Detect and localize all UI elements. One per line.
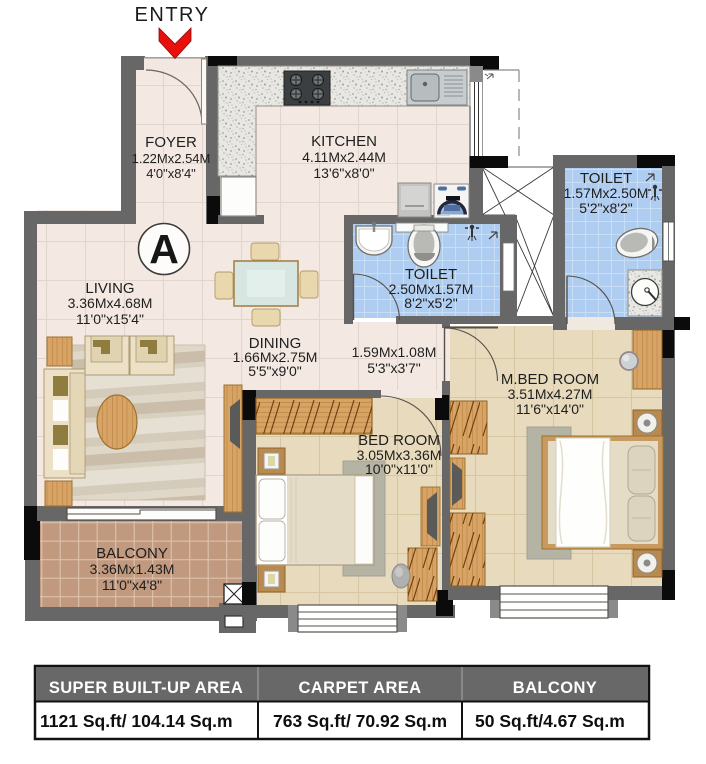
svg-text:1.57Mx2.50M: 1.57Mx2.50M: [564, 185, 649, 201]
svg-text:CARPET AREA: CARPET AREA: [299, 679, 422, 697]
svg-text:763 Sq.ft/ 70.92 Sq.m: 763 Sq.ft/ 70.92 Sq.m: [273, 711, 447, 731]
svg-text:1.22Mx2.54M: 1.22Mx2.54M: [132, 151, 211, 166]
svg-text:BALCONY: BALCONY: [513, 679, 597, 697]
svg-text:11'0"x4'8": 11'0"x4'8": [102, 577, 162, 593]
svg-text:11'0"x15'4": 11'0"x15'4": [76, 311, 144, 327]
svg-text:ENTRY: ENTRY: [135, 4, 210, 26]
svg-text:10'0"x11'0": 10'0"x11'0": [365, 461, 433, 477]
svg-text:50 Sq.ft/4.67 Sq.m: 50 Sq.ft/4.67 Sq.m: [475, 711, 625, 731]
svg-text:5'5"x9'0": 5'5"x9'0": [248, 363, 301, 379]
svg-text:3.36Mx1.43M: 3.36Mx1.43M: [90, 561, 175, 577]
svg-text:4'0"x8'4": 4'0"x8'4": [146, 166, 196, 181]
svg-text:A: A: [149, 226, 179, 272]
svg-text:13'6"x8'0": 13'6"x8'0": [313, 165, 374, 181]
svg-text:11'6"x14'0": 11'6"x14'0": [516, 401, 584, 417]
svg-text:4.11Mx2.44M: 4.11Mx2.44M: [302, 149, 386, 165]
svg-text:BALCONY: BALCONY: [96, 545, 168, 562]
svg-text:KITCHEN: KITCHEN: [311, 133, 377, 150]
svg-text:FOYER: FOYER: [145, 134, 197, 151]
svg-text:3.36Mx4.68M: 3.36Mx4.68M: [68, 295, 153, 311]
svg-text:3.51Mx4.27M: 3.51Mx4.27M: [508, 386, 593, 402]
svg-text:SUPER BUILT-UP AREA: SUPER BUILT-UP AREA: [49, 679, 243, 697]
svg-text:5'3"x3'7": 5'3"x3'7": [367, 360, 420, 376]
svg-text:5'2"x8'2": 5'2"x8'2": [579, 200, 632, 216]
svg-text:1121 Sq.ft/ 104.14 Sq.m: 1121 Sq.ft/ 104.14 Sq.m: [40, 711, 233, 731]
svg-text:1.59Mx1.08M: 1.59Mx1.08M: [352, 344, 437, 360]
svg-text:8'2"x5'2": 8'2"x5'2": [404, 295, 457, 311]
